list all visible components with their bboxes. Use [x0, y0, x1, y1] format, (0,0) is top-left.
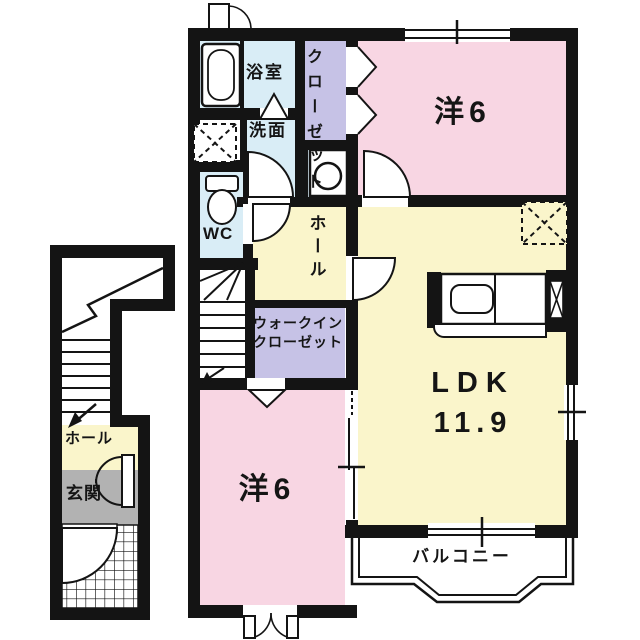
western-room-bottom-label: 洋6 — [207, 473, 327, 508]
bathtub-icon — [202, 41, 244, 108]
outdoor-stairs — [62, 340, 110, 412]
western-room-top-label: 洋6 — [405, 96, 520, 131]
ldk-label: LDK — [388, 367, 558, 400]
washroom-label: 洗面 — [249, 121, 287, 141]
entry-hall-label: ホール — [65, 430, 113, 447]
hall-main-label: ホール — [306, 214, 326, 292]
window-top — [405, 20, 510, 44]
balcony-label: バルコニー — [387, 547, 537, 567]
washer-pan-dashed-icon — [194, 124, 236, 162]
vent-window-icon — [209, 4, 251, 29]
refrigerator-space-icon — [522, 202, 567, 244]
floor-plan: 浴室 洗面 クローゼット WC ホール ウォークインクローゼット 洋6 LDK … — [0, 0, 640, 640]
closet-label: クローゼット — [302, 48, 323, 140]
walkin-line2: クローゼット — [253, 334, 343, 350]
french-window — [243, 605, 298, 638]
bathroom-label: 浴室 — [246, 63, 284, 83]
walkin-line1: ウォークイン — [253, 315, 343, 331]
toilet-icon — [206, 176, 238, 224]
entrance-label: 玄関 — [66, 484, 102, 504]
wc-label: WC — [203, 224, 233, 244]
ldk-size-label: 11.9 — [388, 407, 558, 440]
ldk-fill — [358, 207, 566, 525]
kitchen-counter-icon — [427, 270, 566, 337]
internal-stairs — [200, 263, 245, 380]
walkin-closet-label: ウォークインクローゼット — [250, 314, 346, 352]
kitchen-sink-icon — [451, 285, 493, 313]
open-passage — [346, 390, 358, 417]
